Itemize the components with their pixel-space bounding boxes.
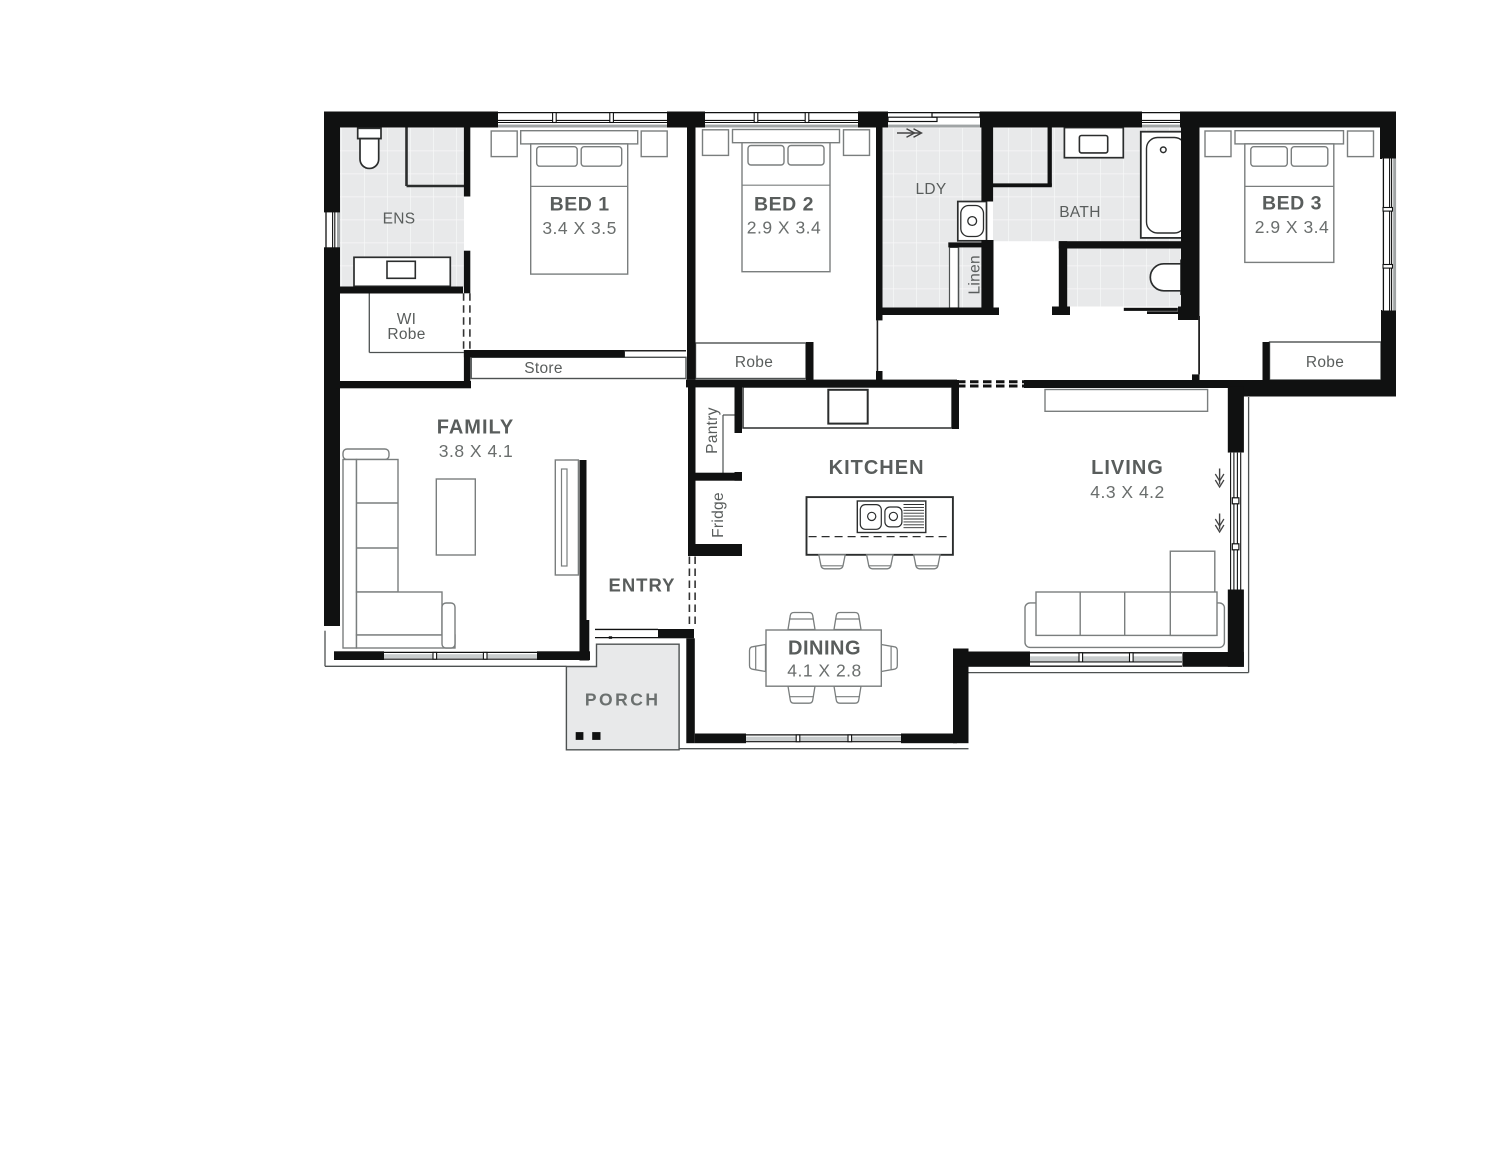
svg-text:Robe: Robe bbox=[387, 326, 425, 343]
svg-text:KITCHEN: KITCHEN bbox=[829, 457, 925, 479]
svg-text:ENTRY: ENTRY bbox=[608, 575, 675, 596]
svg-text:2.9 X 3.4: 2.9 X 3.4 bbox=[747, 218, 822, 238]
svg-text:4.1 X 2.8: 4.1 X 2.8 bbox=[787, 661, 862, 681]
svg-text:PORCH: PORCH bbox=[585, 690, 661, 710]
svg-text:ENS: ENS bbox=[383, 211, 416, 228]
svg-text:3.4 X 3.5: 3.4 X 3.5 bbox=[542, 218, 617, 238]
svg-text:BED 2: BED 2 bbox=[754, 193, 814, 215]
svg-text:Pantry: Pantry bbox=[704, 407, 721, 454]
svg-text:LDY: LDY bbox=[915, 181, 946, 198]
svg-text:Robe: Robe bbox=[735, 354, 773, 371]
svg-text:Linen: Linen bbox=[967, 255, 984, 294]
svg-text:BED 1: BED 1 bbox=[550, 194, 610, 216]
svg-text:DINING: DINING bbox=[788, 638, 861, 660]
svg-text:Store: Store bbox=[524, 360, 563, 377]
svg-text:Robe: Robe bbox=[1306, 354, 1344, 371]
svg-text:BATH: BATH bbox=[1059, 204, 1100, 221]
svg-text:FAMILY: FAMILY bbox=[437, 417, 515, 439]
svg-text:4.3 X 4.2: 4.3 X 4.2 bbox=[1090, 482, 1165, 502]
svg-text:2.9 X 3.4: 2.9 X 3.4 bbox=[1255, 217, 1330, 237]
svg-text:Fridge: Fridge bbox=[710, 492, 727, 538]
svg-text:BED 3: BED 3 bbox=[1262, 192, 1322, 214]
svg-text:3.8 X 4.1: 3.8 X 4.1 bbox=[439, 441, 514, 461]
svg-text:LIVING: LIVING bbox=[1091, 457, 1164, 479]
